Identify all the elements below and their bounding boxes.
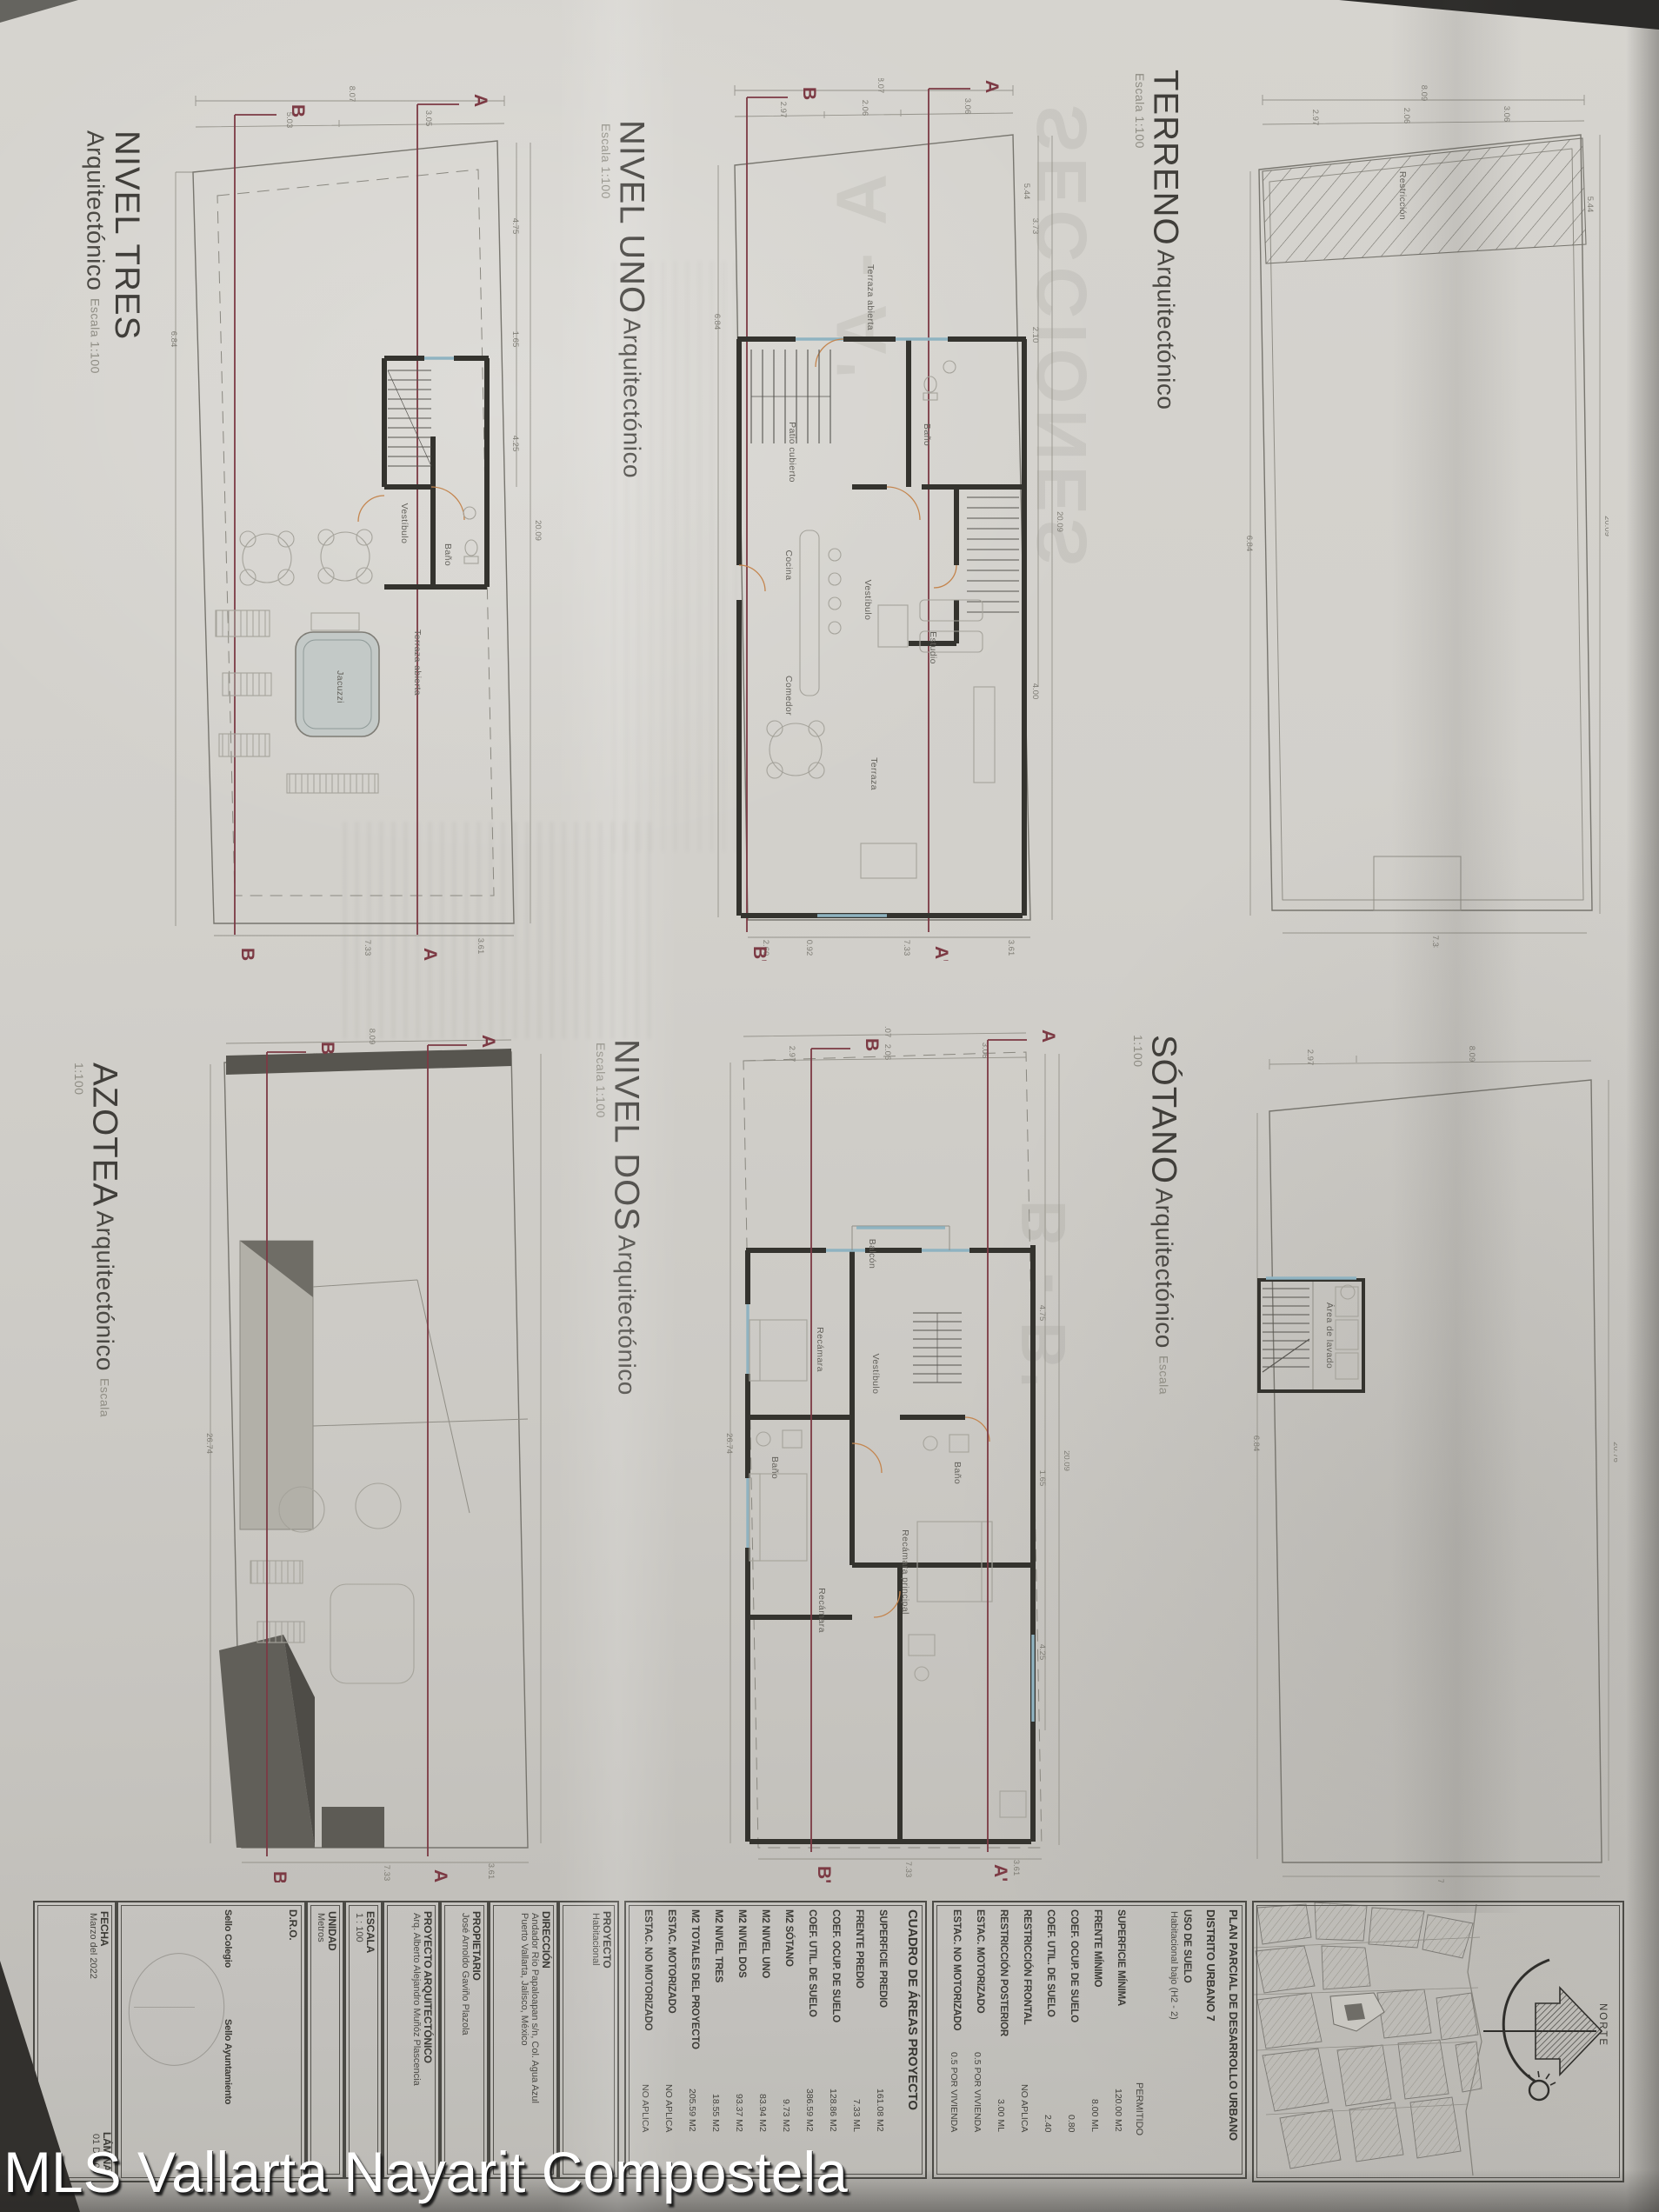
plan-parcial-table: PLAN PARCIAL DE DESARROLLO URBANO DISTRI…: [932, 1901, 1247, 2179]
direccion-value-1: Andador Río Papaloapan s/n, Col. Agua Az…: [530, 1913, 540, 2103]
title-nivel-tres: NIVEL TRES Arquitectónico Escala 1:100: [83, 130, 145, 496]
walls: [746, 1226, 1033, 1842]
cuadro-row-value: 9.73 M2: [781, 2099, 791, 2132]
svg-text:Restricción: Restricción: [1397, 171, 1408, 220]
svg-text:Baño: Baño: [952, 1462, 963, 1484]
photo-edge-top-left: [0, 0, 78, 23]
restriction-hatch: Restricción: [1263, 138, 1586, 263]
permitido-header: PERMITIDO: [1129, 1909, 1149, 2170]
plan-drawing-nivel-tres: 8.07 5.03 3.05 6.84 20.09 4.75 1.65 4.25…: [165, 78, 548, 961]
plan-drawing-azotea: 8.09 5.03 3.05 26.74 7.33 3.61 B A: [200, 1026, 548, 1882]
furniture: [750, 1320, 1026, 1817]
svg-text:5.44: 5.44: [1585, 197, 1595, 213]
unidad-value: Metros: [316, 1913, 326, 1950]
cuadro-row: M2 TOTALES DEL PROYECTO205.59 M2: [679, 1909, 703, 2170]
cuadro-row-value: 386.59 M2: [804, 2089, 815, 2132]
svg-text:Vestíbulo: Vestíbulo: [399, 503, 410, 544]
svg-text:Balcón: Balcón: [867, 1239, 877, 1269]
plan-parcial-row-value: 0.80: [1066, 2115, 1076, 2132]
svg-text:2.97: 2.97: [778, 102, 788, 118]
proyecto-arq-value: Arq. Alberto Alejandro Muñóz Plascencia: [411, 1913, 422, 2086]
laundry-room: Área de lavado: [1259, 1278, 1363, 1391]
plan-title: AZOTEA: [85, 1063, 123, 1207]
svg-text:20.09: 20.09: [1062, 1450, 1069, 1471]
titleblock-proyecto-box: PROYECTOHabitacional: [558, 1901, 619, 2179]
svg-text:8.09: 8.09: [1419, 85, 1429, 102]
svg-text:3.61: 3.61: [1006, 940, 1016, 956]
titleblock-unidad-box: UNIDADMetros: [306, 1901, 344, 2179]
cuadro-row: M2 NIVEL UNO83.94 M2: [750, 1909, 773, 2170]
svg-text:8.07: 8.07: [876, 78, 885, 93]
svg-text:3.06: 3.06: [963, 98, 972, 115]
svg-text:6.84: 6.84: [1252, 1436, 1261, 1452]
escala-label: ESCALA: [364, 1911, 376, 1953]
svg-text:B': B': [814, 1866, 834, 1882]
propietario-value: José Arnoldo Gaviño Plazola: [460, 1913, 470, 2035]
svg-text:B: B: [862, 1038, 882, 1051]
photo-edge-top-right: [1339, 0, 1659, 30]
plan-scale: Escala 1:100: [89, 298, 103, 374]
plan-parcial-row-value: NO APLICA: [1019, 2084, 1029, 2132]
plot-boundary: [743, 1052, 1042, 1848]
svg-text:3.73: 3.73: [1030, 218, 1040, 235]
svg-text:4.00: 4.00: [1030, 683, 1040, 700]
scanned-plan-sheet: SECCIONES A - A' B - B' NIVEL TRES Arqui…: [0, 0, 1659, 2212]
svg-text:3.06: 3.06: [1502, 106, 1511, 123]
titleblock-propietario-box: PROPIETARIOJosé Arnoldo Gaviño Plazola: [440, 1901, 489, 2179]
escala-value: 1 : 100: [354, 1913, 364, 1953]
title-azotea: AZOTEA Arquitectónico Escala 1:100: [71, 1063, 123, 1428]
section-lines: B A B' A': [811, 1029, 1058, 1882]
direccion-value-2: Puerto Vallarta, Jalisco, México: [519, 1913, 530, 2103]
cuadro-row-label: M2 TOTALES DEL PROYECTO: [690, 1909, 700, 2049]
dimension-lines: 8.07 2.97 2.06 3.06 5.44 3.73 2.10 20.09…: [713, 78, 1064, 956]
svg-text:6.84: 6.84: [713, 314, 722, 330]
svg-text:3.61: 3.61: [476, 938, 485, 955]
plot-boundary: [735, 135, 1030, 920]
pencil-stamp-circle: [121, 1947, 231, 2072]
cuadro-row: COEF. OCUP. DE SUELO128.86 M2: [820, 1909, 843, 2170]
cuadro-row-label: SUPERFICIE PREDIO: [877, 1909, 888, 2008]
svg-text:Cocina: Cocina: [783, 550, 794, 580]
svg-text:B: B: [317, 1042, 337, 1055]
uso-value: Habitacional bajo (H2 - 2): [1169, 1911, 1179, 2170]
watermark-text: MLS Vallarta Nayarit Compostela: [3, 2139, 848, 2205]
svg-text:Terraza: Terraza: [869, 757, 879, 790]
cuadro-row: M2 NIVEL TRES18.55 M2: [703, 1909, 726, 2170]
svg-text:20.09: 20.09: [1055, 511, 1064, 532]
plan-title: TERRENO: [1146, 70, 1184, 246]
cuadro-row-value: 7.33 ML: [851, 2099, 862, 2132]
uso-label: USO DE SUELO: [1182, 1909, 1192, 1983]
svg-text:4.25: 4.25: [510, 436, 520, 452]
room-labels: Balcón Recámara Vestíbulo Baño Baño Recá…: [770, 1239, 963, 1633]
plan-parcial-row-label: ESTAC. NO MOTORIZADO: [951, 1909, 962, 2030]
svg-text:Terraza abierta: Terraza abierta: [412, 630, 423, 696]
svg-text:2.97: 2.97: [1310, 110, 1320, 126]
cuadro-row-label: M2 NIVEL TRES: [713, 1909, 723, 1982]
svg-text:7.33: 7.33: [382, 1865, 391, 1882]
cuadro-de-areas-table: CUADRO DE ÁREAS PROYECTO SUPERFICIE PRED…: [624, 1901, 927, 2179]
svg-text:20.09: 20.09: [1602, 516, 1609, 536]
cuadro-row-value: 161.08 M2: [875, 2089, 885, 2132]
title-nivel-uno: NIVEL UNO Arquitectónico Escala 1:100: [598, 120, 650, 485]
svg-text:Estudio: Estudio: [928, 631, 938, 664]
svg-text:2.10: 2.10: [1030, 327, 1040, 343]
plan-drawing-terreno: 8.09 2.97 2.06 3.06 5.44 6.84 20.09 7.33…: [1243, 74, 1609, 948]
plan-parcial-row-value: 8.00 ML: [1089, 2099, 1100, 2132]
svg-text:26.74: 26.74: [204, 1433, 214, 1454]
svg-text:7.33: 7.33: [902, 940, 911, 956]
plan-parcial-row: COEF. OCUP. DE SUELO0.80: [1058, 1909, 1082, 2170]
direccion-label: DIRECCIÓN: [540, 1911, 552, 2103]
plan-subtitle: Arquitectónico: [91, 1210, 118, 1370]
svg-text:2.06: 2.06: [1402, 108, 1411, 124]
plan-parcial-row-label: RESTRICCIÓN FRONTAL: [1022, 1909, 1032, 2025]
norte-label: NORTE: [1597, 2003, 1608, 2047]
svg-text:8.07: 8.07: [347, 86, 356, 103]
svg-text:B': B': [750, 946, 770, 961]
plan-title: NIVEL TRES: [108, 130, 146, 340]
proyecto-arq-label: PROYECTO ARQUITECTÓNICO: [422, 1911, 434, 2086]
plan-title: NIVEL UNO: [612, 120, 650, 314]
dro-label: D.R.O.: [287, 1909, 299, 1940]
plan-parcial-row-label: COEF. UTIL. DE SUELO: [1045, 1909, 1056, 2017]
dimension-lines: 2.97 8.09 6.84 20.76 7.33: [1252, 1046, 1617, 1882]
svg-text:6.84: 6.84: [1244, 536, 1254, 552]
svg-text:Recámara: Recámara: [815, 1327, 825, 1372]
svg-text:7.33: 7.33: [903, 1862, 913, 1878]
svg-text:A': A': [990, 1864, 1010, 1882]
uso-de-suelo-row: USO DE SUELO Habitacional bajo (H2 - 2): [1149, 1909, 1195, 2170]
svg-text:7.33: 7.33: [1436, 1879, 1445, 1882]
section-lines: B A B' A': [747, 80, 1002, 961]
svg-text:20.76: 20.76: [1611, 1442, 1617, 1462]
svg-text:0.92: 0.92: [804, 940, 814, 956]
cuadro-row-label: COEF. UTIL. DE SUELO: [807, 1909, 817, 2017]
pencil-stamp-line: [134, 2007, 195, 2008]
title-nivel-dos: NIVEL DOS Arquitectónico Escala 1:100: [593, 1039, 644, 1404]
svg-text:Área de lavado: Área de lavado: [1324, 1303, 1336, 1369]
svg-text:2.97: 2.97: [1305, 1049, 1315, 1066]
section-lines: B A B' A': [235, 94, 490, 961]
plan-parcial-row-value: 120.00 M2: [1113, 2089, 1123, 2132]
north-arrow-symbol: [1482, 1944, 1621, 2153]
walls: [358, 358, 489, 587]
plan-title: SÓTANO: [1144, 1035, 1183, 1184]
cuadro-row: M2 SÓTANO9.73 M2: [773, 1909, 796, 2170]
unidad-label: UNIDAD: [326, 1911, 338, 1950]
plan-parcial-row-value: 0.5 POR VIVIENDA: [949, 2052, 959, 2132]
svg-text:8.09: 8.09: [1467, 1046, 1476, 1063]
cuadro-row: COEF. UTIL. DE SUELO386.59 M2: [796, 1909, 820, 2170]
plan-subtitle: Arquitectónico: [613, 1235, 640, 1395]
cuadro-row-value: 128.86 M2: [828, 2089, 838, 2132]
plan-parcial-row: ESTAC. NO MOTORIZADO0.5 POR VIVIENDA: [941, 1909, 964, 2170]
svg-text:5.44: 5.44: [1022, 183, 1031, 200]
title-sotano: SÓTANO Arquitectónico Escala 1:100: [1130, 1035, 1182, 1400]
svg-text:8.09: 8.09: [367, 1029, 376, 1045]
titleblock-escala-box: ESCALA1 : 100: [344, 1901, 383, 2179]
svg-text:2.06: 2.06: [860, 100, 869, 117]
svg-text:B: B: [799, 87, 819, 100]
plan-subtitle: Arquitectónico: [1152, 250, 1179, 410]
fecha-label: FECHA: [98, 1911, 110, 1979]
cuadro-row-value: NO APLICA: [640, 2084, 650, 2132]
plan-parcial-row-label: FRENTE MÍNIMO: [1092, 1909, 1103, 1987]
sello-ayuntamiento-label: Sello Ayuntamiento: [223, 2019, 233, 2104]
svg-text:3.61: 3.61: [486, 1863, 496, 1880]
svg-text:1.65: 1.65: [1037, 1470, 1047, 1487]
plan-parcial-row-value: 3.00 ML: [996, 2099, 1006, 2132]
photo-right-shadow: [1626, 0, 1659, 2212]
room-labels: Terraza abierta Patio cubierto Vestíbulo…: [783, 264, 938, 790]
svg-text:3.05: 3.05: [423, 110, 433, 127]
cuadro-row-value: NO APLICA: [663, 2084, 674, 2132]
cuadro-row-value: 18.55 M2: [710, 2094, 721, 2132]
svg-text:7.33: 7.33: [1430, 936, 1440, 948]
svg-text:4.75: 4.75: [510, 218, 520, 235]
svg-text:A: A: [470, 94, 490, 107]
svg-text:2.06: 2.06: [883, 1044, 892, 1061]
plot-detail: [1374, 856, 1461, 910]
cuadro-title: CUADRO DE ÁREAS PROYECTO: [890, 1909, 920, 2170]
plan-parcial-row-label: RESTRICCIÓN POSTERIOR: [998, 1909, 1009, 2036]
proyecto-label: PROYECTO: [601, 1911, 613, 1969]
plan-parcial-title-2: DISTRITO URBANO 7: [1195, 1909, 1217, 2170]
svg-text:Recámara: Recámara: [816, 1588, 827, 1633]
svg-text:Baño: Baño: [443, 543, 453, 566]
svg-text:8.07: 8.07: [883, 1026, 892, 1037]
stair-main: [967, 497, 1019, 612]
location-map-box: NORTE: [1252, 1901, 1624, 2182]
svg-text:4.25: 4.25: [1037, 1644, 1047, 1661]
svg-text:Comedor: Comedor: [783, 676, 794, 716]
svg-text:A: A: [982, 80, 1002, 93]
plan-subtitle: Arquitectónico: [1150, 1188, 1177, 1348]
plan-parcial-row: RESTRICCIÓN FRONTALNO APLICA: [1011, 1909, 1035, 2170]
titleblock-proyecto-arq-box: PROYECTO ARQUITECTÓNICOArq. Alberto Alej…: [383, 1901, 440, 2179]
plan-parcial-row: RESTRICCIÓN POSTERIOR3.00 ML: [988, 1909, 1011, 2170]
svg-text:7.33: 7.33: [363, 940, 372, 956]
plan-title: NIVEL DOS: [607, 1039, 645, 1231]
svg-text:Patio cubierto: Patio cubierto: [787, 422, 797, 483]
cuadro-row-value: 93.37 M2: [734, 2094, 744, 2132]
furniture: [767, 361, 995, 878]
sello-colegio-label: Sello Colegio: [223, 1909, 233, 1968]
plan-parcial-row: FRENTE MÍNIMO8.00 ML: [1082, 1909, 1105, 2170]
plan-scale: Escala 1:100: [594, 1043, 608, 1118]
plan-scale: Escala 1:100: [1133, 73, 1147, 149]
cuadro-row: FRENTE PREDIO7.33 ML: [843, 1909, 867, 2170]
cuadro-row-label: ESTAC. NO MOTORIZADO: [643, 1909, 653, 2030]
proyecto-value: Habitacional: [590, 1913, 601, 1969]
cuadro-row-label: M2 NIVEL DOS: [736, 1909, 747, 1978]
fecha-group: FECHA Marzo del 2022: [88, 1911, 110, 1979]
svg-text:3.61: 3.61: [1011, 1860, 1021, 1876]
svg-text:4.75: 4.75: [1037, 1305, 1047, 1322]
plan-parcial-row-label: COEF. OCUP. DE SUELO: [1069, 1909, 1079, 2022]
titleblock-direccion-box: DIRECCIÓNAndador Río Papaloapan s/n, Col…: [489, 1901, 558, 2179]
plan-drawing-nivel-dos: 8.07 2.97 2.06 3.06 4.75 20.09 1.65 4.25…: [722, 1026, 1069, 1882]
svg-text:A: A: [1038, 1029, 1058, 1043]
svg-text:Vestíbulo: Vestíbulo: [863, 580, 873, 621]
permitido-label: PERMITIDO: [1134, 2082, 1144, 2135]
walls: [737, 339, 1026, 916]
roof-outline: [219, 1049, 528, 1848]
cuadro-row-label: COEF. OCUP. DE SUELO: [830, 1909, 841, 2022]
plan-parcial-row-label: ESTAC. MOTORIZADO: [975, 1909, 985, 2013]
svg-text:A': A': [931, 946, 951, 961]
plot-boundary: [193, 141, 514, 923]
svg-text:A': A': [420, 948, 440, 961]
dimension-lines: 8.07 2.97 2.06 3.06 4.75 20.09 1.65 4.25…: [724, 1026, 1069, 1877]
propietario-label: PROPIETARIO: [470, 1911, 483, 2035]
svg-text:Terraza abierta: Terraza abierta: [865, 264, 876, 330]
plan-scale: Escala 1:100: [599, 123, 613, 199]
cuadro-row: SUPERFICIE PREDIO161.08 M2: [867, 1909, 890, 2170]
svg-text:A': A': [430, 1869, 450, 1882]
cuadro-row-label: FRENTE PREDIO: [854, 1909, 864, 1989]
plan-parcial-row-value: 2.40: [1043, 2115, 1053, 2132]
cuadro-row-label: M2 SÓTANO: [783, 1909, 794, 1967]
plan-parcial-row: SUPERFICIE MÍNIMA120.00 M2: [1105, 1909, 1129, 2170]
svg-text:Baño: Baño: [770, 1456, 780, 1479]
plan-parcial-row-label: SUPERFICIE MÍNIMA: [1116, 1909, 1126, 2006]
svg-text:20.09: 20.09: [533, 520, 543, 541]
plan-parcial-row-value: 0.5 POR VIVIENDA: [972, 2052, 983, 2132]
plan-subtitle: Arquitectónico: [83, 130, 110, 290]
cuadro-row-value: 205.59 M2: [687, 2089, 697, 2132]
svg-text:26.74: 26.74: [724, 1433, 734, 1454]
plan-drawing-nivel-uno: 8.07 2.97 2.06 3.06 5.44 3.73 2.10 20.09…: [713, 78, 1065, 961]
svg-text:Recámara principal: Recámara principal: [900, 1529, 910, 1615]
plan-parcial-row: COEF. UTIL. DE SUELO2.40: [1035, 1909, 1058, 2170]
svg-text:B': B': [237, 948, 257, 961]
title-terreno: TERRENO Arquitectónico Escala 1:100: [1132, 70, 1183, 435]
stair: [388, 370, 431, 466]
fecha-value: Marzo del 2022: [88, 1913, 98, 1979]
plot-boundary: [1269, 1080, 1602, 1862]
svg-text:6.84: 6.84: [169, 331, 178, 348]
cuadro-row-value: 83.94 M2: [757, 2094, 768, 2132]
svg-text:Vestíbulo: Vestíbulo: [870, 1354, 881, 1395]
plan-drawing-sotano: 2.97 8.09 6.84 20.76 7.33 Área de lavado: [1252, 1026, 1617, 1882]
plan-subtitle: Arquitectónico: [618, 318, 645, 478]
cuadro-row: M2 NIVEL DOS93.37 M2: [726, 1909, 750, 2170]
svg-text:A: A: [478, 1035, 498, 1048]
stair: [913, 1313, 962, 1382]
plan-parcial-title-1: PLAN PARCIAL DE DESARROLLO URBANO: [1217, 1909, 1240, 2170]
cuadro-row: ESTAC. NO MOTORIZADONO APLICA: [632, 1909, 656, 2170]
svg-text:Jacuzzi: Jacuzzi: [335, 670, 345, 703]
svg-text:Baño: Baño: [922, 423, 932, 446]
svg-text:1.65: 1.65: [510, 331, 520, 348]
plan-parcial-row: ESTAC. MOTORIZADO0.5 POR VIVIENDA: [964, 1909, 988, 2170]
cuadro-row-label: ESTAC. MOTORIZADO: [666, 1909, 676, 2013]
svg-text:B: B: [288, 104, 308, 117]
cuadro-row-label: M2 NIVEL UNO: [760, 1909, 770, 1978]
svg-text:B': B': [270, 1871, 290, 1882]
cuadro-row: ESTAC. MOTORIZADONO APLICA: [656, 1909, 679, 2170]
